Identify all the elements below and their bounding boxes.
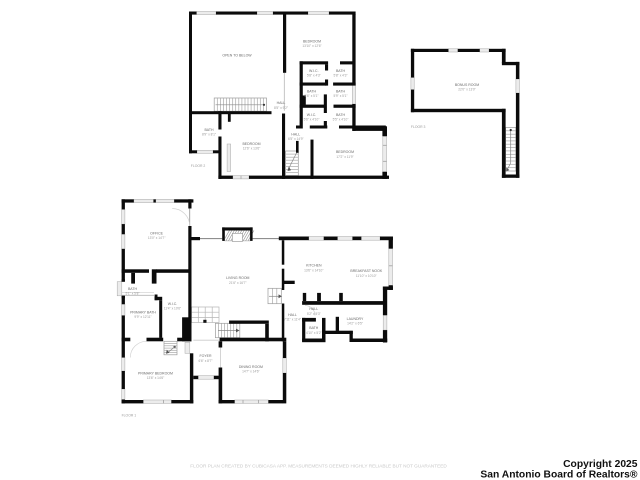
svg-text:FLOOR PLAN CREATED BY CUBICASA: FLOOR PLAN CREATED BY CUBICASA APP. MEAS… — [190, 464, 447, 469]
svg-text:13'6" x 14'6": 13'6" x 14'6" — [147, 376, 164, 380]
svg-text:5'2" x 5'3": 5'2" x 5'3" — [307, 312, 321, 316]
svg-text:DINING ROOM: DINING ROOM — [239, 365, 263, 369]
svg-text:22'0" x 13'0": 22'0" x 13'0" — [458, 88, 475, 92]
svg-text:KITCHEN: KITCHEN — [306, 264, 322, 268]
svg-text:5'6" x 4'10": 5'6" x 4'10" — [304, 118, 320, 122]
svg-text:BATH: BATH — [309, 326, 319, 330]
svg-text:11'10" x 10'10": 11'10" x 10'10" — [356, 274, 377, 278]
svg-text:W.I.C.: W.I.C. — [309, 69, 319, 73]
svg-text:6'6" x 8'7": 6'6" x 8'7" — [199, 359, 213, 363]
svg-text:5'6" x 5'1": 5'6" x 5'1" — [305, 94, 319, 98]
svg-text:BATH: BATH — [307, 90, 317, 94]
svg-text:HALL: HALL — [288, 313, 297, 317]
svg-text:5'1" x 5'8": 5'1" x 5'8" — [126, 292, 140, 296]
svg-text:FLOOR 1: FLOOR 1 — [122, 413, 137, 417]
svg-text:LIVING ROOM: LIVING ROOM — [226, 276, 249, 280]
svg-text:5'9" x 5'1": 5'9" x 5'1" — [334, 94, 348, 98]
svg-text:OFFICE: OFFICE — [150, 232, 163, 236]
svg-text:BATH: BATH — [128, 287, 138, 291]
svg-text:HALL: HALL — [309, 307, 318, 311]
svg-text:6'5" x 14'9": 6'5" x 14'9" — [288, 137, 304, 141]
svg-text:14'7" x 14'6": 14'7" x 14'6" — [242, 370, 259, 374]
svg-text:BATH: BATH — [336, 69, 346, 73]
svg-text:7'11" x 11'4": 7'11" x 11'4" — [284, 317, 301, 321]
svg-text:9'9" x 12'11": 9'9" x 12'11" — [134, 315, 151, 319]
svg-text:FOYER: FOYER — [199, 354, 212, 358]
svg-text:BEDROOM: BEDROOM — [336, 150, 354, 154]
svg-text:San Antonio Board of Realtors®: San Antonio Board of Realtors® — [480, 470, 638, 480]
svg-text:PRIMARY BATH: PRIMARY BATH — [130, 311, 156, 315]
svg-text:5'8" x 4'3": 5'8" x 4'3" — [334, 74, 348, 78]
svg-text:OPEN TO BELOW: OPEN TO BELOW — [222, 53, 252, 57]
svg-text:17'2" x 11'9": 17'2" x 11'9" — [336, 155, 353, 159]
svg-text:BATH: BATH — [336, 90, 346, 94]
svg-text:BEDROOM: BEDROOM — [303, 39, 321, 43]
svg-text:W.I.C.: W.I.C. — [168, 302, 178, 306]
svg-text:Copyright 2025: Copyright 2025 — [563, 459, 638, 470]
svg-text:12'6" x 13'6": 12'6" x 13'6" — [243, 146, 260, 150]
svg-text:HALL: HALL — [291, 132, 300, 136]
svg-text:LAUNDRY: LAUNDRY — [347, 317, 364, 321]
svg-text:13'0" x 14'7": 13'0" x 14'7" — [148, 236, 165, 240]
svg-text:HALL: HALL — [277, 101, 286, 105]
svg-text:11'4" x 10'6": 11'4" x 10'6" — [164, 306, 181, 310]
svg-text:14'2" x 6'5": 14'2" x 6'5" — [347, 321, 363, 325]
svg-text:5'5" x 4'10": 5'5" x 4'10" — [333, 118, 349, 122]
svg-text:PRIMARY BEDROOM: PRIMARY BEDROOM — [138, 372, 173, 376]
svg-text:W.I.C.: W.I.C. — [307, 113, 317, 117]
svg-text:FLOOR 3: FLOOR 3 — [411, 125, 426, 129]
svg-text:BATH: BATH — [336, 113, 346, 117]
svg-text:21'6" x 16'7": 21'6" x 16'7" — [229, 281, 246, 285]
svg-text:13'10" x 12'6": 13'10" x 12'6" — [302, 44, 321, 48]
svg-text:5'8" x 4'3": 5'8" x 4'3" — [307, 74, 321, 78]
svg-text:BEDROOM: BEDROOM — [242, 142, 260, 146]
svg-text:8'9" x 8'1": 8'9" x 8'1" — [202, 132, 216, 136]
svg-text:BATH: BATH — [204, 128, 214, 132]
svg-text:BONUS ROOM: BONUS ROOM — [455, 83, 479, 87]
svg-text:13'6" x 14'10": 13'6" x 14'10" — [304, 268, 323, 272]
svg-text:8'5" x 9'2": 8'5" x 9'2" — [274, 106, 288, 110]
svg-text:FLOOR 2: FLOOR 2 — [191, 164, 206, 168]
svg-text:4'10" x 5'2": 4'10" x 5'2" — [306, 331, 322, 335]
svg-text:BREAKFAST NOOK: BREAKFAST NOOK — [350, 269, 382, 273]
